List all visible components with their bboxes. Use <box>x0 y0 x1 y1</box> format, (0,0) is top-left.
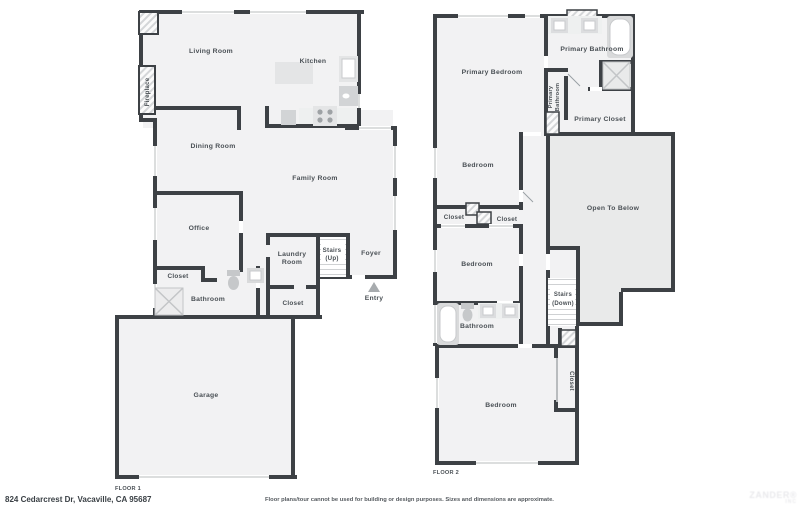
office-label: Office <box>189 225 210 232</box>
bedroom3-label: Bedroom <box>485 402 517 409</box>
closet-label: Closet <box>167 273 189 280</box>
stairs-up-label-line2: (Up) <box>325 255 338 262</box>
floor2-title: FLOOR 2 <box>433 470 459 476</box>
entry-arrow-icon <box>368 282 380 292</box>
primary-bedroom-label: Primary Bedroom <box>462 69 523 76</box>
laundry-room-label-line2: Room <box>282 259 302 266</box>
entry-label: Entry <box>365 295 384 302</box>
bathroom-label: Bathroom <box>191 296 225 303</box>
floor-plan-page: Living Room Kitchen Fireplace Dining Roo… <box>0 0 800 509</box>
fireplace-label: Fireplace <box>145 77 151 106</box>
primary-shower <box>603 62 630 89</box>
floor-plan-canvas: Living Room Kitchen Fireplace Dining Roo… <box>0 0 800 509</box>
disclaimer-text: Floor plans/tour cannot be used for buil… <box>265 497 554 503</box>
floor2-plan: Primary Bedroom Primary Bathroom Primary… <box>433 10 675 476</box>
floor1-title: FLOOR 1 <box>115 486 141 492</box>
closet-right-label: Closet <box>497 216 517 223</box>
bedroom1-label: Bedroom <box>462 162 494 169</box>
stairs-down-label-line2: (Down) <box>552 301 574 307</box>
floor1-plan: Living Room Kitchen Fireplace Dining Roo… <box>115 10 397 492</box>
stairs-down-label-line1: Stairs <box>554 292 573 298</box>
property-address: 824 Cedarcrest Dr, Vacaville, CA 95687 <box>5 495 151 504</box>
stairs-bottom-hatch <box>561 330 576 346</box>
primary-closet-hatch <box>546 112 559 134</box>
watermark-logo: ZANDER® INC <box>749 491 797 505</box>
closet2-label: Closet <box>282 300 304 307</box>
foyer-label: Foyer <box>361 250 381 257</box>
primary-bathroom-small-label-line2: Bathroom <box>555 83 561 111</box>
primary-closet-label: Primary Closet <box>574 116 626 123</box>
dining-room-label: Dining Room <box>190 143 235 150</box>
living-room-label: Living Room <box>189 48 233 55</box>
garage-label: Garage <box>194 392 219 399</box>
stairs-up-label-line1: Stairs <box>323 247 342 254</box>
kitchen-label: Kitchen <box>300 58 327 65</box>
watermark-line2: INC <box>749 500 797 505</box>
primary-bathroom-small-label-line1: Primary <box>548 85 554 108</box>
shower-floor1 <box>155 288 183 315</box>
bedroom2-label: Bedroom <box>461 261 493 268</box>
chimney-hatch <box>139 12 158 34</box>
closet-vertical-label: Closet <box>568 371 574 391</box>
family-room-label: Family Room <box>292 175 337 182</box>
open-to-below-label: Open To Below <box>587 205 640 212</box>
primary-bathroom-label: Primary Bathroom <box>560 46 623 53</box>
floor1-room-fills <box>117 14 393 477</box>
closet-left-label: Closet <box>444 214 464 221</box>
closet-step-hatch-2 <box>477 212 491 224</box>
laundry-room-label-line1: Laundry <box>278 251 307 258</box>
bathroom2-label: Bathroom <box>460 323 494 330</box>
